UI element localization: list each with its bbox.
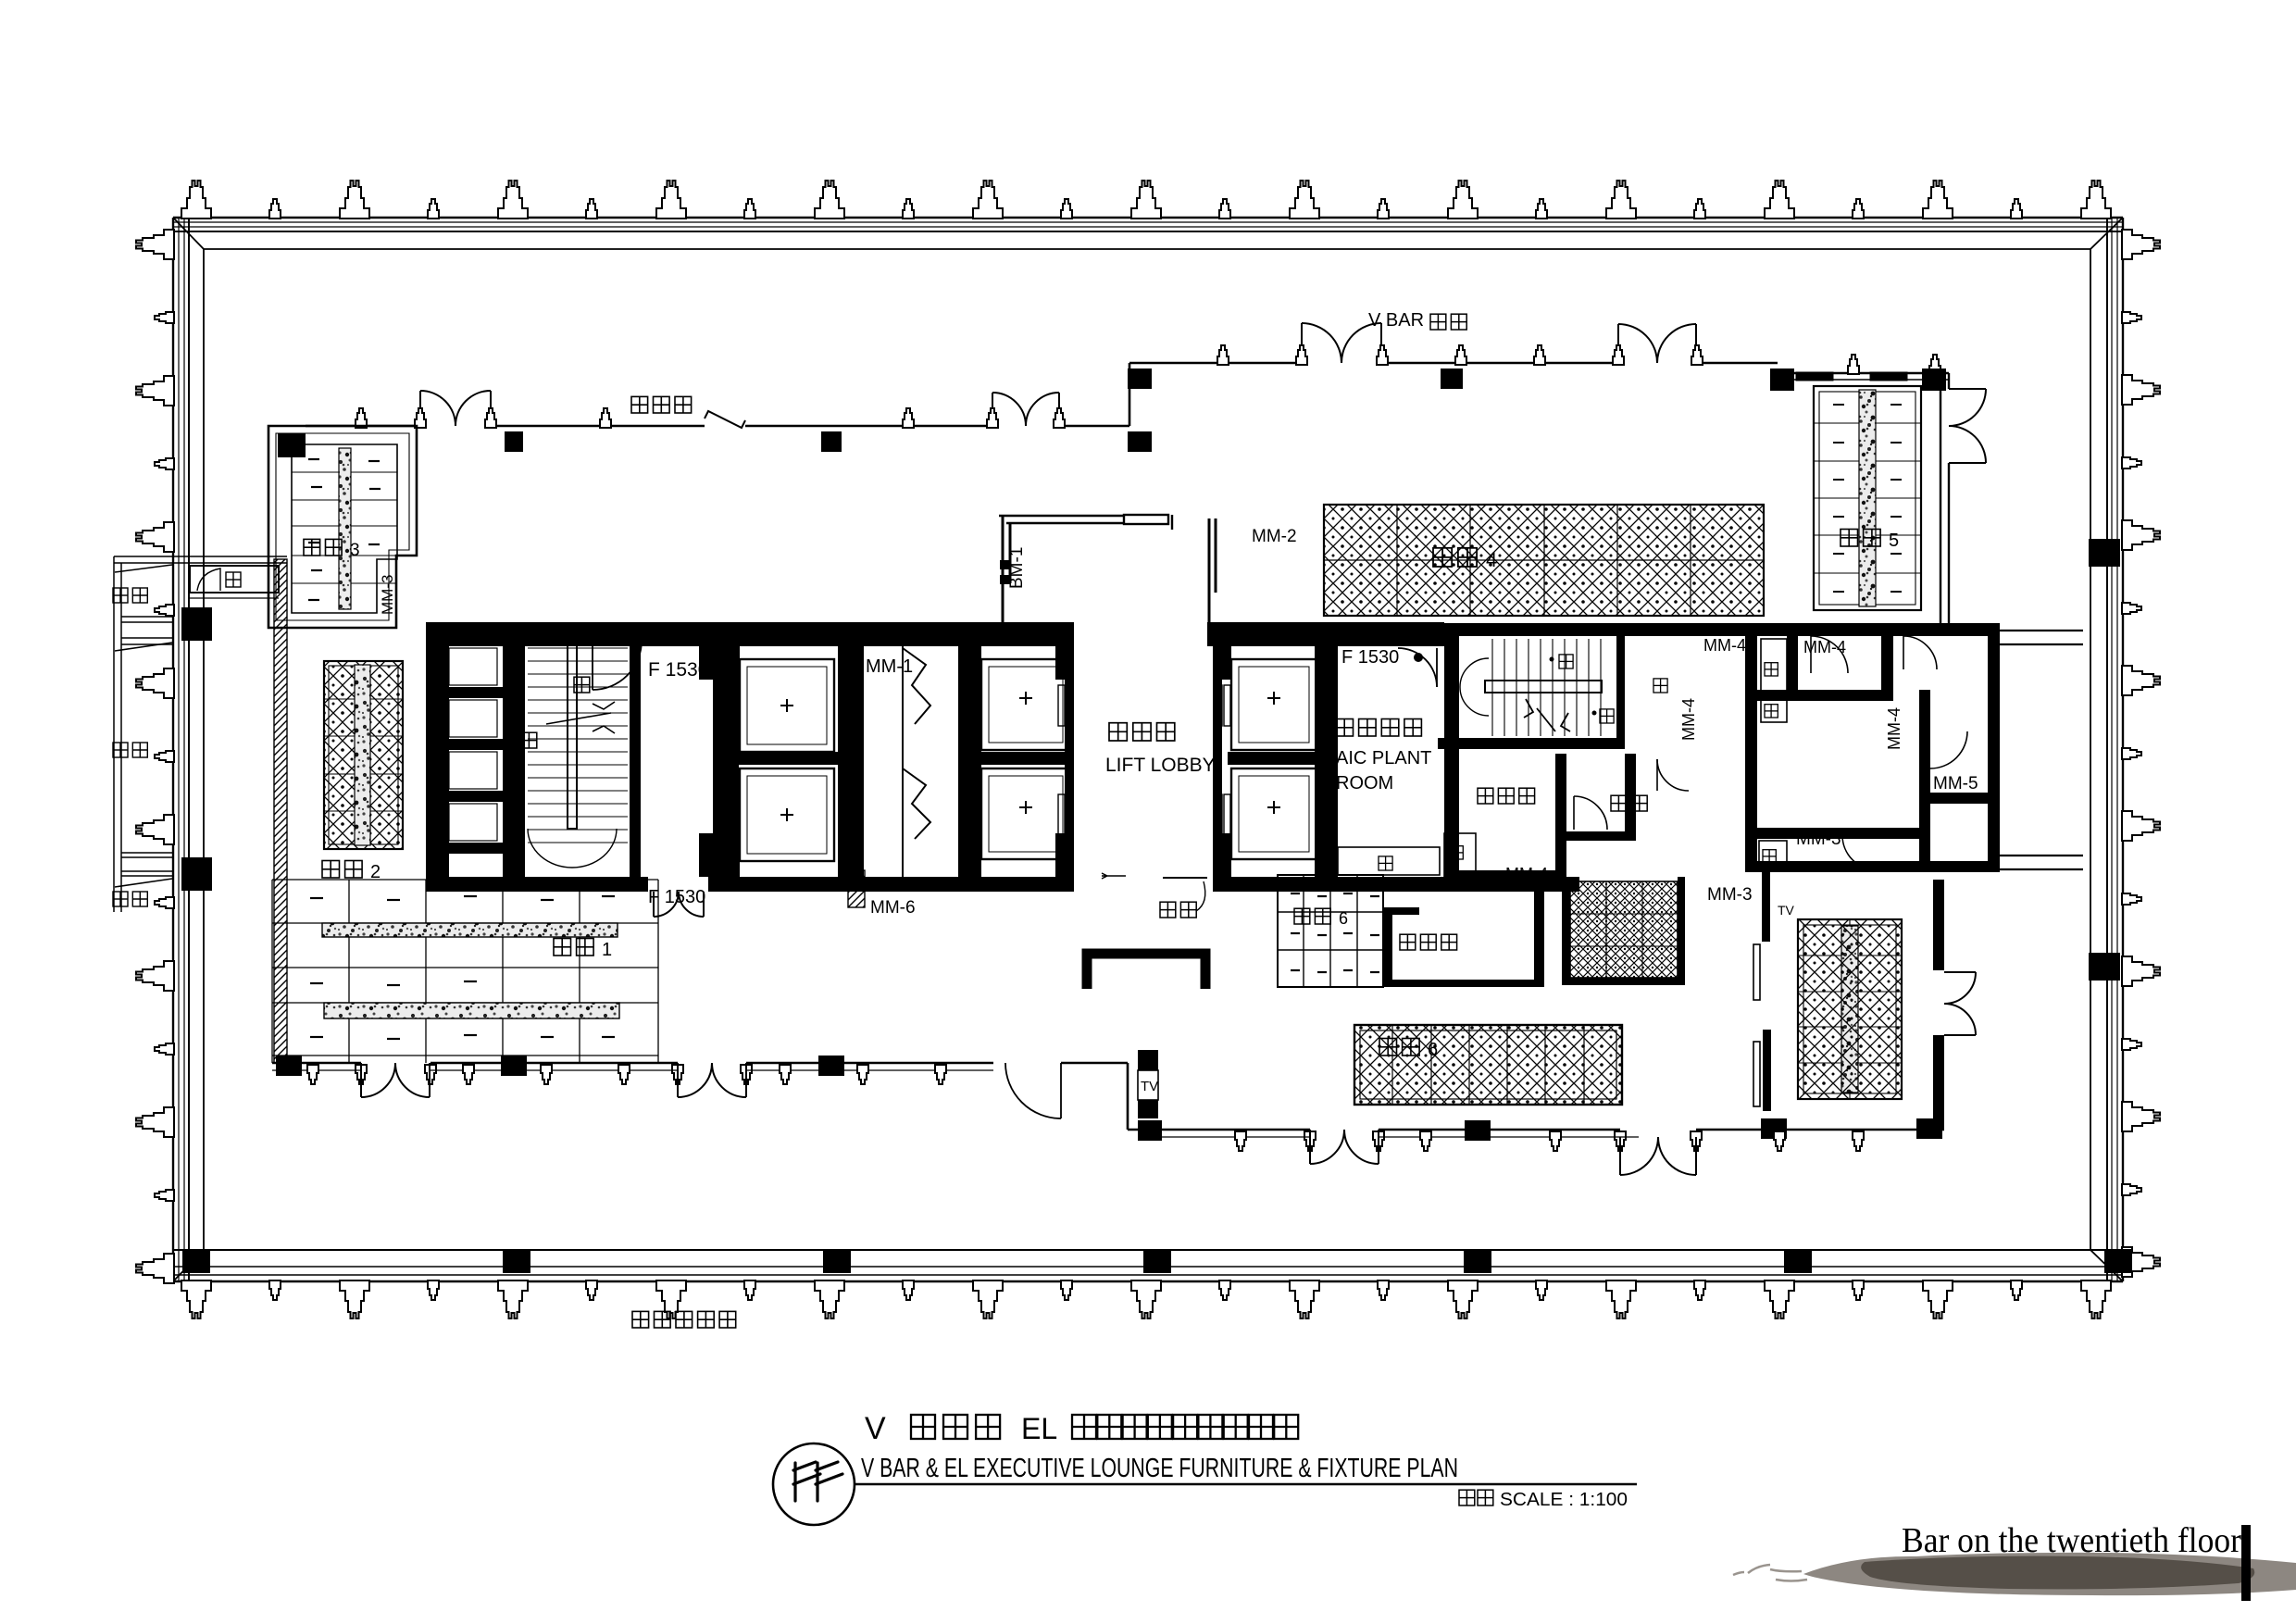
- svg-text:5: 5: [1889, 531, 1899, 551]
- svg-text:TV: TV: [1141, 1079, 1158, 1094]
- svg-text:TV: TV: [1778, 903, 1795, 918]
- svg-text:MM-5: MM-5: [1933, 774, 1978, 793]
- svg-text:MM-4: MM-4: [1505, 865, 1548, 883]
- svg-text:MM-4: MM-4: [1679, 698, 1698, 741]
- svg-text:MM-6: MM-6: [870, 898, 916, 918]
- svg-text:V BAR & EL EXECUTIVE LOUNGE FU: V BAR & EL EXECUTIVE LOUNGE FURNITURE & …: [861, 1454, 1458, 1483]
- svg-text:LIFT LOBBY: LIFT LOBBY: [1105, 755, 1216, 776]
- svg-text:V: V: [865, 1411, 886, 1446]
- svg-text:Bar on the twentieth floor: Bar on the twentieth floor: [1902, 1521, 2241, 1560]
- svg-text:EL: EL: [1021, 1412, 1057, 1445]
- svg-text:MM-4: MM-4: [1703, 636, 1746, 655]
- svg-text:MM-2: MM-2: [1252, 527, 1297, 546]
- svg-text:MM-3: MM-3: [1796, 830, 1841, 849]
- svg-text:ROOM: ROOM: [1336, 773, 1393, 793]
- svg-text:F 1530: F 1530: [1341, 647, 1399, 668]
- svg-text:3: 3: [350, 541, 360, 560]
- svg-text:MM-3: MM-3: [1707, 885, 1753, 905]
- svg-text:MM-4: MM-4: [1803, 638, 1846, 656]
- svg-text:MM-4: MM-4: [1885, 707, 1903, 750]
- svg-text:6: 6: [1428, 1040, 1438, 1060]
- svg-text:MM-3: MM-3: [379, 575, 396, 615]
- svg-text:4: 4: [1486, 548, 1497, 571]
- svg-text:BM-1: BM-1: [1007, 547, 1027, 589]
- svg-text:6: 6: [1339, 909, 1348, 928]
- svg-text:1: 1: [602, 940, 612, 960]
- svg-text:MM-1: MM-1: [866, 656, 913, 677]
- svg-text:AIC PLANT: AIC PLANT: [1336, 748, 1431, 768]
- svg-text:V BAR: V BAR: [1368, 310, 1424, 331]
- svg-text:SCALE : 1:100: SCALE : 1:100: [1500, 1490, 1628, 1510]
- svg-text:F 1530: F 1530: [648, 887, 705, 907]
